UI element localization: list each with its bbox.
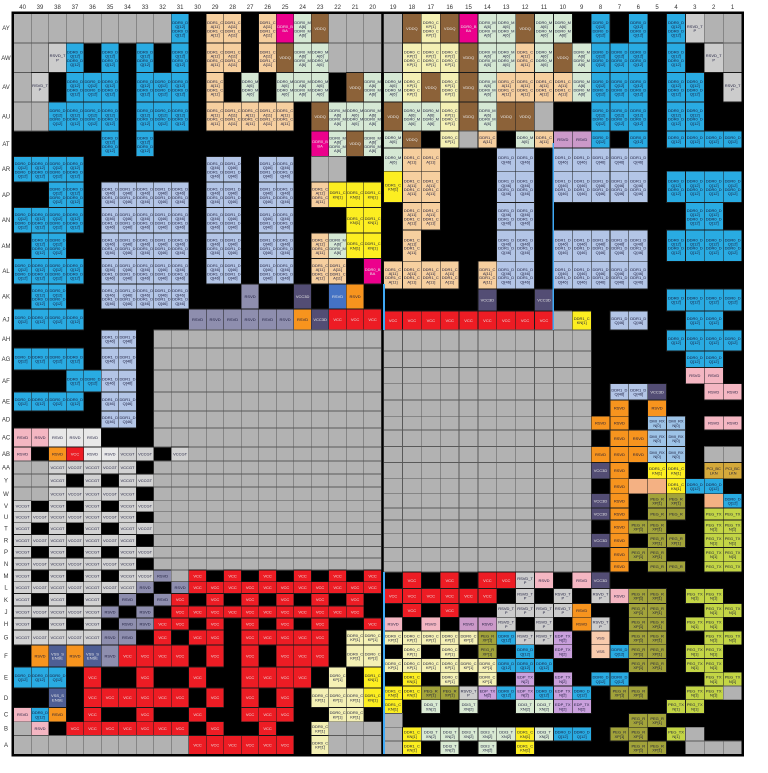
- svg-text:RSVD: RSVD: [708, 421, 719, 426]
- svg-text:Q[12]: Q[12]: [18, 319, 28, 324]
- svg-text:RSVD: RSVD: [576, 622, 587, 627]
- svg-text:VCC: VCC: [298, 635, 307, 640]
- svg-text:VCC: VCC: [521, 318, 530, 323]
- svg-text:N[1]: N[1]: [710, 693, 717, 698]
- svg-text:Q[12]: Q[12]: [35, 301, 45, 306]
- svg-text:KN[1]: KN[1]: [407, 679, 417, 684]
- svg-text:Q[46]: Q[46]: [228, 276, 238, 281]
- svg-text:VCC: VCC: [106, 695, 115, 700]
- svg-text:Q[12]: Q[12]: [18, 677, 28, 682]
- svg-text:VCCGT: VCCGT: [68, 635, 83, 640]
- svg-text:VCCGT: VCCGT: [68, 610, 83, 615]
- svg-text:RSVD: RSVD: [614, 538, 625, 543]
- svg-text:VCCGT: VCCGT: [51, 538, 66, 543]
- svg-text:VCCGT: VCCGT: [121, 515, 136, 520]
- svg-text:XP[1]: XP[1]: [671, 501, 681, 506]
- svg-text:Q[12]: Q[12]: [596, 139, 606, 144]
- svg-text:A[6]: A[6]: [334, 121, 341, 126]
- svg-text:Q[46]: Q[46]: [501, 250, 511, 255]
- svg-text:A[6]: A[6]: [503, 62, 510, 67]
- svg-text:P: P: [505, 624, 508, 629]
- svg-text:Q[46]: Q[46]: [105, 419, 115, 424]
- svg-text:VCC: VCC: [263, 635, 272, 640]
- svg-text:KP[1]: KP[1]: [407, 62, 417, 67]
- svg-text:33: 33: [142, 5, 149, 11]
- svg-text:XN[2]: XN[2]: [501, 734, 511, 739]
- svg-text:VCCGT: VCCGT: [33, 635, 48, 640]
- svg-text:PEG_TX: PEG_TX: [706, 564, 722, 569]
- svg-text:P: P: [4, 550, 8, 556]
- svg-text:A[6]: A[6]: [540, 62, 547, 67]
- svg-text:VCCGT: VCCGT: [33, 538, 48, 543]
- svg-text:A[11]: A[11]: [316, 250, 325, 255]
- svg-text:Q[46]: Q[46]: [105, 359, 115, 364]
- svg-text:Y: Y: [4, 479, 8, 485]
- svg-text:Q[12]: Q[12]: [70, 174, 80, 179]
- svg-text:40: 40: [19, 5, 26, 11]
- svg-text:VCCGT: VCCGT: [103, 538, 118, 543]
- svg-text:VDDQ: VDDQ: [519, 26, 531, 31]
- svg-text:A[11]: A[11]: [426, 191, 435, 196]
- svg-text:VCCGT: VCCGT: [86, 515, 101, 520]
- svg-text:Q[12]: Q[12]: [53, 359, 63, 364]
- svg-text:Q[12]: Q[12]: [671, 92, 681, 97]
- svg-text:VCC: VCC: [176, 726, 185, 731]
- svg-text:Q[12]: Q[12]: [70, 401, 80, 406]
- svg-text:VCC: VCC: [211, 622, 220, 627]
- svg-text:VCC: VCC: [281, 712, 290, 717]
- svg-text:Q[12]: Q[12]: [690, 221, 700, 226]
- svg-text:23: 23: [317, 5, 324, 11]
- svg-text:Q[12]: Q[12]: [671, 139, 681, 144]
- svg-text:AC: AC: [2, 436, 11, 442]
- svg-text:RSVD: RSVD: [192, 317, 203, 322]
- svg-text:RSVD: RSVD: [157, 597, 168, 602]
- svg-text:Q[12]: Q[12]: [709, 300, 719, 305]
- svg-text:VCC: VCC: [333, 317, 342, 322]
- svg-text:A[6]: A[6]: [540, 33, 547, 38]
- svg-text:13: 13: [503, 5, 510, 11]
- svg-text:Q[46]: Q[46]: [140, 199, 150, 204]
- svg-text:VCC: VCC: [298, 573, 307, 578]
- svg-text:KN[1]: KN[1]: [350, 194, 360, 199]
- svg-text:KP[1]: KP[1]: [315, 728, 325, 733]
- svg-text:A[6]: A[6]: [559, 33, 566, 38]
- svg-text:VCCGT: VCCGT: [16, 597, 31, 602]
- svg-text:Q[12]: Q[12]: [728, 501, 738, 506]
- svg-text:VCC: VCC: [246, 743, 255, 748]
- svg-text:AK: AK: [2, 295, 10, 301]
- svg-text:VCC: VCC: [228, 573, 237, 578]
- svg-text:VCCGT: VCCGT: [16, 550, 31, 555]
- svg-text:KP[1]: KP[1]: [368, 656, 378, 661]
- svg-text:KP[1]: KP[1]: [464, 665, 474, 670]
- svg-text:VCCGT: VCCGT: [121, 504, 136, 509]
- svg-text:RSVD: RSVD: [614, 564, 625, 569]
- svg-text:RSVD: RSVD: [332, 294, 343, 299]
- svg-text:A[11]: A[11]: [558, 92, 567, 97]
- svg-text:Q[46]: Q[46]: [228, 250, 238, 255]
- svg-text:VCC: VCC: [445, 594, 454, 599]
- svg-text:Q[12]: Q[12]: [671, 250, 681, 255]
- svg-text:XP[1]: XP[1]: [633, 665, 643, 670]
- svg-text:Q[12]: Q[12]: [35, 359, 45, 364]
- svg-text:Q[12]: Q[12]: [501, 638, 511, 643]
- svg-text:Q[12]: Q[12]: [140, 62, 150, 67]
- svg-text:RSVD: RSVD: [708, 389, 719, 394]
- svg-text:Q[46]: Q[46]: [558, 250, 568, 255]
- svg-text:VCC: VCC: [351, 317, 360, 322]
- svg-text:VCC: VCC: [211, 597, 220, 602]
- svg-text:VCCGT: VCCGT: [86, 585, 101, 590]
- svg-text:N[0]: N[0]: [672, 438, 679, 443]
- svg-text:Q[12]: Q[12]: [105, 92, 115, 97]
- svg-text:RSVD: RSVD: [595, 421, 606, 426]
- svg-text:A[11]: A[11]: [407, 221, 416, 226]
- svg-text:VCC: VCC: [408, 594, 417, 599]
- svg-text:VCC: VCC: [368, 573, 377, 578]
- svg-text:VCC: VCC: [88, 712, 97, 717]
- svg-text:VCC: VCC: [368, 585, 377, 590]
- svg-text:Q[12]: Q[12]: [671, 62, 681, 67]
- svg-text:W: W: [3, 492, 9, 498]
- svg-text:N[1]: N[1]: [691, 693, 698, 698]
- svg-text:T: T: [4, 527, 8, 533]
- svg-text:18: 18: [409, 5, 416, 11]
- svg-text:VCC3D: VCC3D: [594, 512, 608, 517]
- svg-text:Q[12]: Q[12]: [70, 359, 80, 364]
- svg-text:PEG_R: PEG_R: [650, 564, 664, 569]
- svg-text:KP[1]: KP[1]: [426, 665, 436, 670]
- svg-text:P: P: [524, 580, 527, 585]
- svg-text:5: 5: [655, 5, 659, 11]
- svg-text:Q[12]: Q[12]: [70, 319, 80, 324]
- svg-text:A[11]: A[11]: [521, 62, 530, 67]
- svg-text:XN[2]: XN[2]: [539, 706, 549, 711]
- svg-text:VCC: VCC: [427, 318, 436, 323]
- svg-text:VCCGT: VCCGT: [33, 585, 48, 590]
- svg-text:Q[12]: Q[12]: [596, 33, 606, 38]
- svg-text:VCCGT: VCCGT: [33, 515, 48, 520]
- svg-text:VDDQ: VDDQ: [314, 26, 326, 31]
- svg-text:VCCGT: VCCGT: [138, 550, 153, 555]
- svg-text:Q[46]: Q[46]: [280, 199, 290, 204]
- svg-text:VCC: VCC: [263, 573, 272, 578]
- svg-text:VCC: VCC: [316, 585, 325, 590]
- svg-text:A[11]: A[11]: [228, 33, 237, 38]
- svg-text:24: 24: [299, 5, 306, 11]
- svg-text:PEG_R: PEG_R: [669, 512, 683, 517]
- svg-text:RSVD: RSVD: [175, 585, 186, 590]
- svg-text:RSVD: RSVD: [104, 654, 115, 659]
- svg-text:21: 21: [352, 5, 359, 11]
- svg-text:VCCGT: VCCGT: [68, 515, 83, 520]
- svg-text:Q[46]: Q[46]: [615, 250, 625, 255]
- svg-text:A[6]: A[6]: [299, 92, 306, 97]
- svg-text:ENSE: ENSE: [52, 698, 63, 703]
- svg-text:39: 39: [37, 5, 44, 11]
- svg-text:XN[2]: XN[2]: [445, 734, 455, 739]
- svg-text:9: 9: [580, 5, 584, 11]
- svg-text:RSVD: RSVD: [614, 512, 625, 517]
- svg-text:Q[12]: Q[12]: [140, 121, 150, 126]
- svg-text:VCCGT: VCCGT: [51, 610, 66, 615]
- svg-text:VCC: VCC: [123, 654, 132, 659]
- svg-text:N[1]: N[1]: [729, 610, 736, 615]
- svg-text:Q[12]: Q[12]: [671, 121, 681, 126]
- svg-text:A[11]: A[11]: [407, 279, 416, 284]
- svg-text:F: F: [4, 654, 8, 660]
- svg-text:A[6]: A[6]: [334, 148, 341, 153]
- svg-text:KP[1]: KP[1]: [350, 637, 360, 642]
- svg-text:BA: BA: [317, 143, 323, 148]
- svg-text:10: 10: [559, 5, 566, 11]
- svg-text:VDDQ: VDDQ: [557, 55, 569, 60]
- svg-text:VCCGT: VCCGT: [138, 573, 153, 578]
- svg-text:VCC: VCC: [483, 318, 492, 323]
- svg-text:VCC: VCC: [123, 695, 132, 700]
- svg-text:RSVD: RSVD: [245, 317, 256, 322]
- svg-text:Q[12]: Q[12]: [558, 734, 568, 739]
- svg-text:Q[12]: Q[12]: [633, 121, 643, 126]
- svg-text:VCC: VCC: [281, 635, 290, 640]
- svg-text:RSVD: RSVD: [425, 622, 436, 627]
- svg-text:Q[12]: Q[12]: [728, 340, 738, 345]
- svg-text:Q[12]: Q[12]: [175, 121, 185, 126]
- svg-text:VCCGT: VCCGT: [51, 585, 66, 590]
- svg-text:VCC: VCC: [228, 743, 237, 748]
- svg-text:KP[1]: KP[1]: [407, 638, 417, 643]
- svg-text:Q[12]: Q[12]: [709, 191, 719, 196]
- svg-text:A[6]: A[6]: [390, 139, 397, 144]
- svg-text:Q[12]: Q[12]: [709, 221, 719, 226]
- svg-text:VCC: VCC: [445, 608, 454, 613]
- svg-text:RSVD: RSVD: [557, 137, 568, 142]
- svg-text:KP[1]: KP[1]: [445, 679, 455, 684]
- svg-text:KN[1]: KN[1]: [388, 693, 398, 698]
- svg-text:VCCGT: VCCGT: [138, 452, 153, 457]
- svg-text:N[2]: N[2]: [521, 693, 528, 698]
- svg-text:4: 4: [674, 5, 678, 11]
- svg-text:R: R: [4, 539, 9, 545]
- svg-text:PEG_R: PEG_R: [669, 564, 683, 569]
- svg-text:Q[46]: Q[46]: [501, 191, 511, 196]
- svg-text:KP[1]: KP[1]: [407, 92, 417, 97]
- svg-text:VCC: VCC: [141, 695, 150, 700]
- svg-text:KN[1]: KN[1]: [368, 698, 378, 703]
- svg-text:Q[46]: Q[46]: [175, 276, 185, 281]
- svg-text:RSVD: RSVD: [614, 498, 625, 503]
- svg-text:KP[1]: KP[1]: [464, 638, 474, 643]
- svg-text:VCCGT: VCCGT: [51, 622, 66, 627]
- svg-text:AT: AT: [2, 142, 10, 148]
- svg-text:VCC: VCC: [281, 743, 290, 748]
- svg-text:RSVD: RSVD: [576, 137, 587, 142]
- svg-text:VCC: VCC: [298, 585, 307, 590]
- svg-text:A[6]: A[6]: [299, 62, 306, 67]
- svg-text:P: P: [712, 58, 715, 63]
- svg-text:N[2]: N[2]: [559, 706, 566, 711]
- svg-text:RSVD: RSVD: [210, 317, 221, 322]
- svg-text:Q[12]: Q[12]: [53, 677, 63, 682]
- svg-text:P: P: [599, 596, 602, 601]
- svg-text:N: N: [4, 562, 8, 568]
- svg-text:P: P: [543, 610, 546, 615]
- svg-text:A[11]: A[11]: [483, 139, 492, 144]
- svg-text:VCC: VCC: [281, 585, 290, 590]
- svg-text:Q[46]: Q[46]: [123, 250, 133, 255]
- svg-text:VCC: VCC: [351, 585, 360, 590]
- svg-text:Q[46]: Q[46]: [105, 276, 115, 281]
- svg-text:VCCGT: VCCGT: [138, 526, 153, 531]
- svg-text:VCCGT: VCCGT: [121, 585, 136, 590]
- svg-text:VCCGT: VCCGT: [121, 465, 136, 470]
- svg-text:Q[46]: Q[46]: [280, 250, 290, 255]
- svg-text:Q[46]: Q[46]: [123, 301, 133, 306]
- svg-text:B: B: [4, 727, 8, 733]
- svg-text:VCC: VCC: [246, 654, 255, 659]
- svg-text:PEG_R: PEG_R: [650, 512, 664, 517]
- svg-text:RSVD: RSVD: [17, 712, 28, 717]
- svg-text:XP[1]: XP[1]: [652, 638, 662, 643]
- svg-text:AH: AH: [2, 337, 10, 343]
- svg-text:Q[12]: Q[12]: [35, 319, 45, 324]
- svg-text:A[6]: A[6]: [282, 92, 289, 97]
- svg-text:VCCGT: VCCGT: [121, 526, 136, 531]
- svg-text:ENSE: ENSE: [87, 656, 98, 661]
- svg-text:VCCGT: VCCGT: [86, 504, 101, 509]
- svg-text:Q[12]: Q[12]: [175, 62, 185, 67]
- svg-text:KP[1]: KP[1]: [426, 638, 436, 643]
- svg-text:VCC: VCC: [281, 597, 290, 602]
- svg-text:RSVD: RSVD: [727, 421, 738, 426]
- svg-text:XP[1]: XP[1]: [615, 693, 625, 698]
- svg-text:N[2]: N[2]: [521, 679, 528, 684]
- svg-text:VCC: VCC: [263, 743, 272, 748]
- svg-text:Q[12]: Q[12]: [709, 359, 719, 364]
- svg-text:ENSE: ENSE: [52, 656, 63, 661]
- svg-text:Q[46]: Q[46]: [175, 225, 185, 230]
- svg-text:A[6]: A[6]: [484, 121, 491, 126]
- svg-text:KP[1]: KP[1]: [333, 714, 343, 719]
- svg-text:Q[12]: Q[12]: [728, 250, 738, 255]
- svg-text:Q[12]: Q[12]: [728, 300, 738, 305]
- svg-text:KP[1]: KP[1]: [388, 665, 398, 670]
- svg-text:36: 36: [89, 5, 96, 11]
- svg-text:Q[46]: Q[46]: [633, 191, 643, 196]
- svg-text:XP[1]: XP[1]: [652, 540, 662, 545]
- svg-text:Q[46]: Q[46]: [123, 276, 133, 281]
- svg-text:VCC: VCC: [193, 610, 202, 615]
- svg-text:A[6]: A[6]: [317, 62, 324, 67]
- svg-text:RSVD: RSVD: [727, 389, 738, 394]
- svg-text:Q[46]: Q[46]: [158, 199, 168, 204]
- svg-text:E: E: [4, 676, 8, 682]
- svg-text:VCC: VCC: [408, 608, 417, 613]
- svg-text:Q[46]: Q[46]: [501, 221, 511, 226]
- svg-text:Q[12]: Q[12]: [70, 62, 80, 67]
- svg-text:Q[46]: Q[46]: [140, 301, 150, 306]
- svg-text:KP[1]: KP[1]: [445, 121, 455, 126]
- svg-text:VDDQ: VDDQ: [444, 26, 456, 31]
- svg-text:Q[46]: Q[46]: [140, 250, 150, 255]
- svg-text:RSVD: RSVD: [538, 578, 549, 583]
- svg-text:VCC: VCC: [106, 726, 115, 731]
- svg-text:VCC: VCC: [263, 585, 272, 590]
- svg-text:VDDQ: VDDQ: [349, 85, 361, 90]
- svg-text:KN[1]: KN[1]: [368, 245, 378, 250]
- svg-text:Q[12]: Q[12]: [18, 359, 28, 364]
- svg-text:A[6]: A[6]: [334, 250, 341, 255]
- svg-text:AY: AY: [2, 26, 10, 32]
- svg-text:VCCGT: VCCGT: [51, 504, 66, 509]
- svg-text:Q[46]: Q[46]: [140, 276, 150, 281]
- svg-text:Q[46]: Q[46]: [158, 250, 168, 255]
- svg-text:VDDQ: VDDQ: [349, 141, 361, 146]
- svg-text:A: A: [4, 743, 8, 749]
- svg-text:RSVD: RSVD: [34, 654, 45, 659]
- svg-text:VCCGT: VCCGT: [68, 465, 83, 470]
- svg-text:RSVD: RSVD: [614, 406, 625, 411]
- svg-text:XP[1]: XP[1]: [652, 596, 662, 601]
- svg-text:KP[1]: KP[1]: [445, 651, 455, 656]
- svg-text:RSVD: RSVD: [595, 452, 606, 457]
- svg-text:VCCGT: VCCGT: [68, 491, 83, 496]
- svg-text:Q[12]: Q[12]: [18, 225, 28, 230]
- svg-text:XP[1]: XP[1]: [633, 748, 643, 753]
- svg-text:AP: AP: [2, 193, 10, 199]
- svg-text:K: K: [4, 598, 8, 604]
- svg-text:KP[1]: KP[1]: [445, 638, 455, 643]
- svg-text:VCCGT: VCCGT: [86, 562, 101, 567]
- svg-text:Q[12]: Q[12]: [690, 250, 700, 255]
- svg-text:A[6]: A[6]: [484, 92, 491, 97]
- svg-text:AN: AN: [2, 218, 10, 224]
- svg-text:AA: AA: [2, 466, 10, 472]
- svg-text:Q[46]: Q[46]: [263, 174, 273, 179]
- svg-text:VCC: VCC: [427, 594, 436, 599]
- svg-text:Q[12]: Q[12]: [671, 340, 681, 345]
- svg-text:VCCGT: VCCGT: [103, 465, 118, 470]
- svg-text:Q[12]: Q[12]: [105, 148, 115, 153]
- svg-text:KP[1]: KP[1]: [315, 698, 325, 703]
- svg-text:Q[12]: Q[12]: [690, 139, 700, 144]
- svg-text:AG: AG: [2, 357, 11, 363]
- svg-text:A[11]: A[11]: [211, 62, 220, 67]
- svg-text:Q[46]: Q[46]: [228, 225, 238, 230]
- svg-text:VCC: VCC: [246, 585, 255, 590]
- svg-text:Q[12]: Q[12]: [615, 62, 625, 67]
- svg-text:KN[1]: KN[1]: [368, 194, 378, 199]
- svg-text:VCC: VCC: [193, 675, 202, 680]
- svg-text:L: L: [4, 586, 8, 592]
- svg-text:P: P: [524, 638, 527, 643]
- svg-text:P: P: [543, 624, 546, 629]
- svg-text:A[11]: A[11]: [316, 199, 325, 204]
- svg-text:Q[46]: Q[46]: [263, 250, 273, 255]
- svg-text:32: 32: [159, 5, 166, 11]
- svg-text:Q[12]: Q[12]: [709, 486, 719, 491]
- svg-text:Q[12]: Q[12]: [35, 276, 45, 281]
- svg-text:A[11]: A[11]: [426, 221, 435, 226]
- svg-text:Q[46]: Q[46]: [577, 250, 587, 255]
- svg-text:VCC: VCC: [158, 635, 167, 640]
- svg-text:N[2]: N[2]: [559, 679, 566, 684]
- svg-text:Q[46]: Q[46]: [105, 381, 115, 386]
- svg-text:6: 6: [637, 5, 641, 11]
- svg-text:Q[12]: Q[12]: [615, 121, 625, 126]
- svg-text:VCC: VCC: [176, 597, 185, 602]
